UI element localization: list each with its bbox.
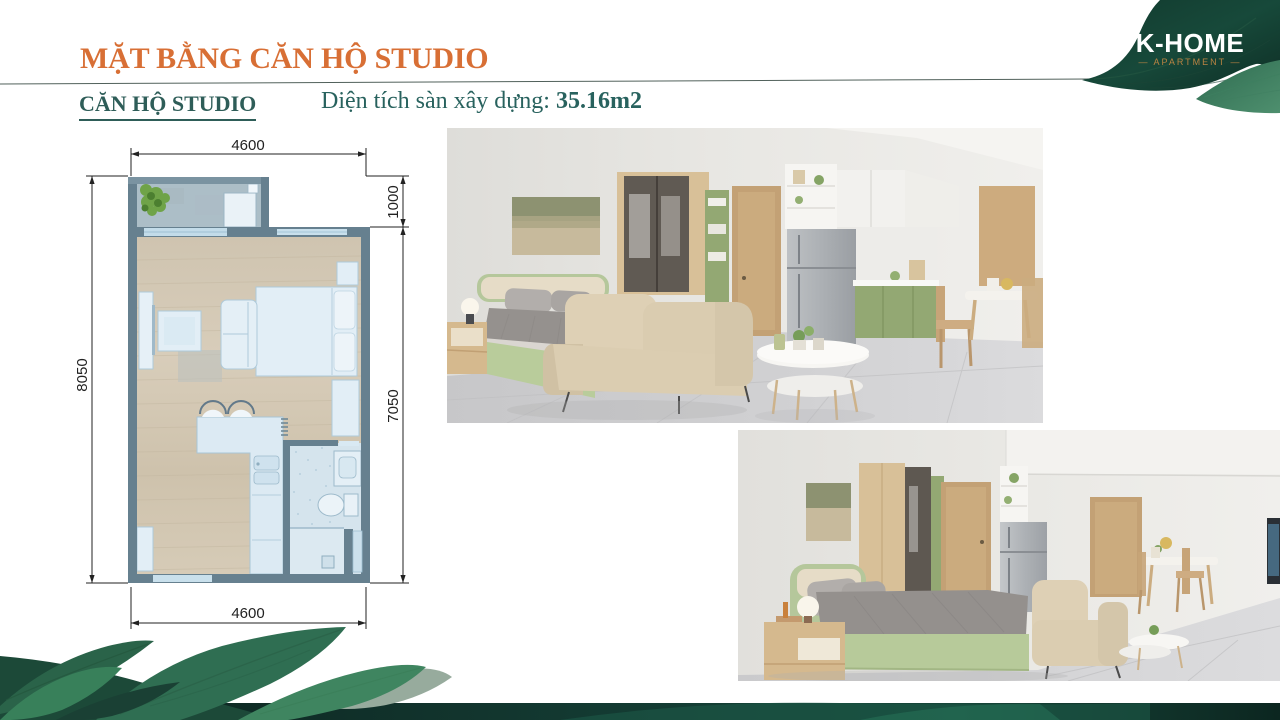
svg-text:4600: 4600 <box>231 137 264 154</box>
svg-text:7050: 7050 <box>385 389 402 422</box>
svg-text:1000: 1000 <box>385 185 402 218</box>
svg-text:8050: 8050 <box>74 358 91 391</box>
